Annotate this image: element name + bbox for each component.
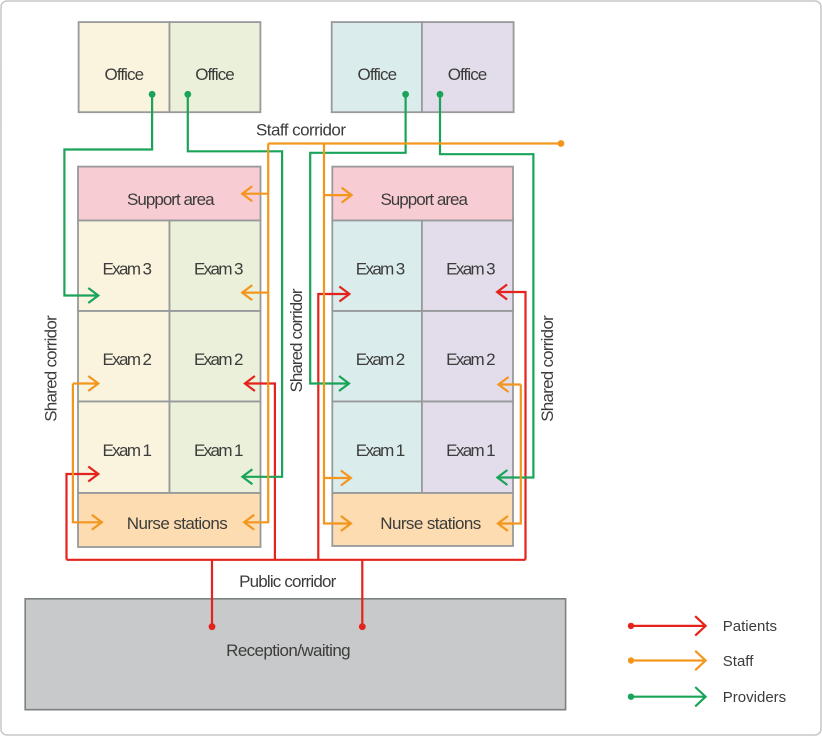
svg-text:Office: Office — [358, 65, 398, 84]
svg-text:Support area: Support area — [380, 190, 468, 209]
svg-text:Exam 2: Exam 2 — [446, 350, 496, 369]
svg-text:Exam 3: Exam 3 — [356, 260, 406, 279]
svg-text:Nurse stations: Nurse stations — [380, 514, 481, 533]
svg-text:Exam 2: Exam 2 — [102, 350, 152, 369]
svg-text:Exam 3: Exam 3 — [446, 260, 496, 279]
svg-text:Reception/waiting: Reception/waiting — [226, 641, 351, 660]
svg-text:Public corridor: Public corridor — [239, 572, 337, 591]
svg-text:Support area: Support area — [127, 190, 215, 209]
svg-text:Office: Office — [105, 65, 145, 84]
svg-text:Patients: Patients — [723, 618, 777, 635]
svg-text:Exam 2: Exam 2 — [194, 350, 244, 369]
svg-text:Exam 1: Exam 1 — [102, 441, 152, 460]
svg-text:Exam 2: Exam 2 — [356, 350, 406, 369]
svg-text:Providers: Providers — [723, 689, 786, 706]
svg-text:Exam 1: Exam 1 — [446, 441, 496, 460]
svg-text:Staff: Staff — [723, 653, 754, 670]
svg-text:Shared corridor: Shared corridor — [42, 315, 61, 422]
svg-text:Exam 1: Exam 1 — [194, 441, 244, 460]
svg-text:Nurse stations: Nurse stations — [127, 514, 228, 533]
svg-text:Shared corridor: Shared corridor — [538, 315, 557, 422]
svg-text:Office: Office — [195, 65, 235, 84]
svg-text:Staff corridor: Staff corridor — [256, 121, 346, 140]
svg-text:Exam 3: Exam 3 — [194, 260, 244, 279]
svg-text:Office: Office — [448, 65, 488, 84]
svg-text:Exam 3: Exam 3 — [102, 260, 152, 279]
svg-text:Exam 1: Exam 1 — [356, 441, 406, 460]
svg-text:Shared corridor: Shared corridor — [287, 288, 306, 392]
